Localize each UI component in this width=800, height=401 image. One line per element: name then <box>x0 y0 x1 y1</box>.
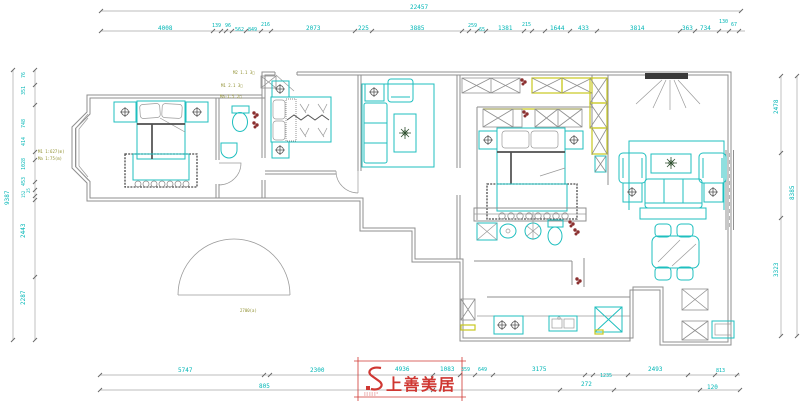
dim-label: 4008 <box>158 25 173 32</box>
dim-label: 130 <box>719 19 728 25</box>
master-bedroom <box>462 78 607 219</box>
plant-icon <box>520 78 526 85</box>
dim-label: 120 <box>707 384 718 391</box>
dim-label: 2287 <box>20 290 27 305</box>
dim-label: 5747 <box>178 367 193 374</box>
dim-label: 849 <box>248 27 257 33</box>
cad-annotation: 2700(a) <box>240 308 257 313</box>
dining-area <box>652 224 699 280</box>
dim-label: 3814 <box>630 25 645 32</box>
entrance-arc <box>178 239 290 295</box>
dim-label: 3323 <box>773 262 780 277</box>
cad-annotation: M1 1:627(m) <box>38 149 65 154</box>
dim-label: 9387 <box>4 190 11 205</box>
kitchen <box>461 299 630 334</box>
bedroom1 <box>114 101 208 187</box>
dim-label: 2300 <box>310 367 325 374</box>
sofa <box>364 103 387 163</box>
cad-annotation: M2 1.1 3□ <box>233 70 255 75</box>
dining-chair <box>655 267 671 280</box>
dim-label: 25 <box>26 188 31 193</box>
sofa <box>645 179 702 208</box>
walls <box>72 72 734 345</box>
wardrobe-row-top <box>462 78 607 172</box>
living-room <box>619 73 726 219</box>
lamp-icon <box>569 135 579 145</box>
lamp-icon <box>275 145 285 155</box>
dim-label: 1028 <box>21 158 27 170</box>
dim-label: 649 <box>478 367 487 373</box>
dimension-chain-right <box>779 74 799 338</box>
floor-plan-canvas: 上善美居 22457400813996562849216207322538852… <box>0 0 800 401</box>
dim-label: 2443 <box>20 223 27 238</box>
sink <box>221 143 237 158</box>
pillow <box>531 131 558 148</box>
storage-corner <box>682 289 734 340</box>
logo-mark-icon <box>369 368 381 390</box>
bay-window <box>76 114 88 180</box>
toilet <box>233 113 248 132</box>
dim-label: 96 <box>225 23 231 29</box>
dim-label: 22457 <box>410 4 428 11</box>
toilet-tank <box>232 106 249 113</box>
dim-label: 351 <box>21 86 27 95</box>
door-swing <box>336 171 358 193</box>
dim-label: 805 <box>259 383 270 390</box>
lamp-icon <box>275 84 285 94</box>
dim-label: 2493 <box>648 366 663 373</box>
entry-shaft <box>261 76 276 88</box>
dim-label: 65 <box>479 27 485 33</box>
kitchen-sink <box>549 316 577 331</box>
dim-label: 139 <box>212 23 221 29</box>
lamp-icon <box>369 87 379 97</box>
dim-label: 216 <box>261 22 270 28</box>
dim-label: 225 <box>358 25 369 32</box>
lamp-icon <box>708 187 718 197</box>
dim-label: 215 <box>522 22 531 28</box>
dim-label: 3175 <box>532 366 547 373</box>
side-table <box>704 183 723 202</box>
plant-icon <box>399 127 411 139</box>
dining-chair <box>677 224 693 237</box>
dim-label: 8385 <box>789 185 796 200</box>
plant-icon <box>573 228 579 235</box>
pillow <box>140 103 161 118</box>
dim-label: 453 <box>21 177 27 186</box>
dim-label: 359 <box>461 367 470 373</box>
toilet <box>548 227 562 245</box>
logo-text: 上善美居 <box>386 375 456 394</box>
dim-label: 562 <box>235 27 244 33</box>
cad-annotation: M1 2.1 3□ <box>221 83 243 88</box>
lamp-icon <box>192 107 202 117</box>
plant-icon <box>522 110 528 117</box>
dim-label: 4936 <box>395 366 410 373</box>
side-table <box>623 183 642 202</box>
pillow <box>273 100 285 119</box>
balcony-window <box>726 150 734 230</box>
dim-label: 1083 <box>440 366 455 373</box>
lamp-icon <box>483 135 493 145</box>
dim-label: 2478 <box>773 99 780 114</box>
burner-icon <box>510 320 520 330</box>
cad-annotation: Ma 1:75(m) <box>38 156 62 161</box>
bathroom1 <box>219 106 259 185</box>
dim-label: 272 <box>581 381 592 388</box>
armchair <box>388 79 413 102</box>
dim-label: 259 <box>468 23 477 29</box>
lamp-icon <box>120 107 130 117</box>
plant-icon <box>252 111 258 118</box>
dim-label: 748 <box>21 119 27 128</box>
dim-label: 734 <box>700 25 711 32</box>
plant-icon <box>252 121 258 128</box>
bed <box>137 101 185 159</box>
bedroom2 <box>271 81 358 193</box>
dim-label: 433 <box>578 25 589 32</box>
tv-light-rays <box>636 80 700 110</box>
plant-icon <box>575 277 581 284</box>
dining-chair <box>677 267 693 280</box>
dim-label: 1644 <box>550 25 565 32</box>
dim-label: 67 <box>731 22 737 28</box>
burner-icon <box>497 320 507 330</box>
tv <box>645 73 688 79</box>
dining-chair <box>655 224 671 237</box>
dim-label: 3885 <box>410 25 425 32</box>
logo-stamp: 上善美居 <box>354 357 466 401</box>
dim-label: 363 <box>682 25 693 32</box>
side-table <box>365 84 384 101</box>
pillow <box>273 121 285 140</box>
family-room <box>362 79 434 167</box>
coffee-table <box>640 208 706 219</box>
pillow <box>502 131 529 148</box>
cad-annotation: Ma-1.5 2□ <box>220 94 242 99</box>
dim-label: 414 <box>21 137 27 146</box>
door-swing <box>219 163 241 185</box>
rug <box>362 84 434 167</box>
dim-label: 1235 <box>600 373 612 379</box>
pillow <box>162 103 183 118</box>
rug <box>629 141 724 210</box>
dim-label: 152 <box>21 190 26 198</box>
wardrobe-row-inner <box>483 109 582 127</box>
dim-label: 1381 <box>498 25 513 32</box>
dim-label: 2073 <box>306 25 321 32</box>
dim-label: 76 <box>21 72 27 78</box>
ceiling-fan <box>525 212 541 240</box>
dim-label: 813 <box>716 368 725 374</box>
plant-icon <box>665 157 677 169</box>
sink <box>500 224 516 238</box>
